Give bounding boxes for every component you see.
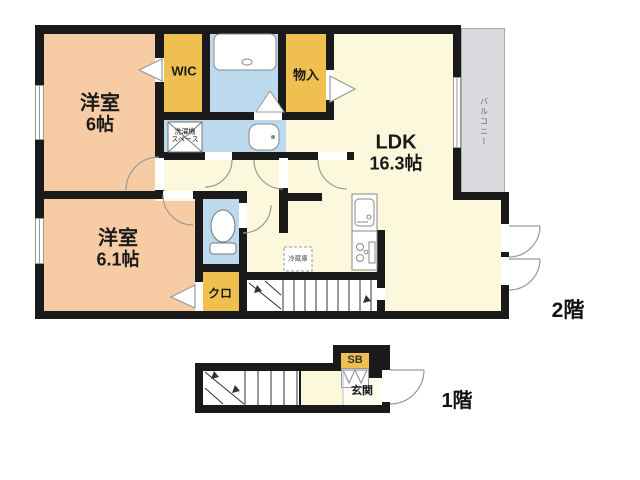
bedroom1-size: 6帖: [80, 115, 120, 135]
storage-label: 物入: [293, 69, 319, 84]
bathtub-icon: [214, 34, 276, 70]
wic-label: WIC: [171, 65, 196, 80]
balcony-label: バルコニー: [479, 97, 490, 147]
toilet-icon: [210, 210, 236, 254]
floor-2-label: 2階: [552, 299, 585, 323]
stairs-1f-treads: [205, 371, 297, 405]
bedroom1-label: 洋室 6帖: [80, 93, 120, 136]
bedroom2-size: 6.1帖: [96, 250, 139, 270]
kitchen-icon: [352, 194, 377, 270]
ldk-size: 16.3帖: [369, 154, 422, 174]
bedroom2-label: 洋室 6.1帖: [96, 228, 139, 271]
bath-door-icon: [256, 91, 284, 112]
fridge-label: 冷蔵庫: [288, 255, 308, 262]
shoebox-label: SB: [347, 354, 362, 366]
bedroom1-name: 洋室: [80, 93, 120, 115]
folding-door-icons: [139, 59, 367, 383]
bedroom2-name: 洋室: [96, 228, 139, 250]
door-arcs: [126, 157, 540, 404]
laundry-line2: スペース: [171, 137, 198, 145]
stairs-2f-treads: [249, 280, 371, 311]
laundry-label: 洗濯機 スペース: [171, 129, 198, 146]
entrance-label: 玄関: [351, 385, 373, 397]
ldk-name: LDK: [369, 132, 422, 154]
floor-1-label: 1階: [441, 390, 472, 412]
ldk-label: LDK 16.3帖: [369, 132, 422, 175]
floor-plan: 洋室 6帖 洋室 6.1帖 LDK 16.3帖 WIC 物入 洗濯機 スペース …: [0, 0, 640, 480]
closet-label: クロ: [208, 287, 232, 300]
sink-icon: [249, 124, 279, 150]
